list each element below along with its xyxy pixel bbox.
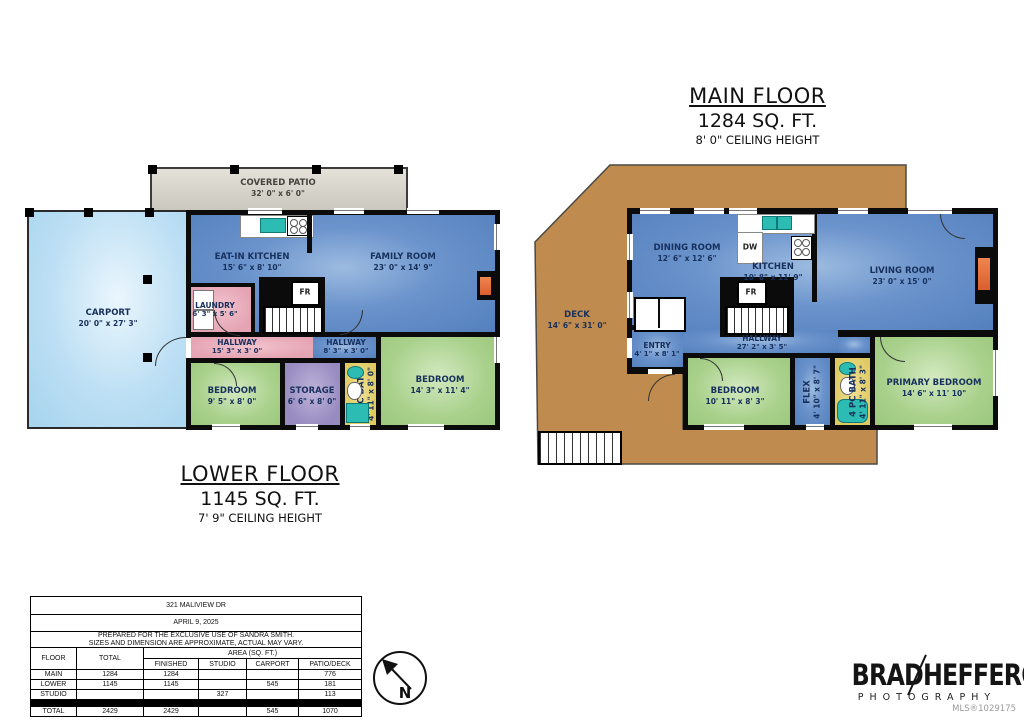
room-label-kitchen: KITCHEN 10' 8" x 11' 9" <box>743 262 802 282</box>
room-label-hallway-main: HALLWAY 27' 2" x 3' 5" <box>737 334 787 352</box>
logo-subtitle: PHOTOGRAPHY <box>839 692 1015 703</box>
col-header-total: TOTAL <box>77 648 144 670</box>
table-row-total: TOTAL 2429 2429 545 1070 <box>31 707 362 717</box>
room-label-dining-room: DINING ROOM 12' 6" x 12' 6" <box>654 243 721 263</box>
window <box>993 350 999 396</box>
table-disclaimer: PREPARED FOR THE EXCLUSIVE USE OF SANDRA… <box>31 632 362 648</box>
col-header-floor: FLOOR <box>31 648 77 670</box>
window <box>627 234 633 260</box>
wall <box>838 330 875 337</box>
dishwasher-label: DW <box>743 243 758 252</box>
col-header-finished: FINISHED <box>144 659 199 670</box>
deck-stairs <box>538 431 622 465</box>
table-separator <box>31 700 362 707</box>
info-table: 321 MALIVIEW DR APRIL 9, 2025 PREPARED F… <box>30 596 362 717</box>
door-opening <box>627 338 632 358</box>
window <box>627 292 633 318</box>
window <box>694 208 724 214</box>
table-row-studio: STUDIO 327 113 <box>31 690 362 700</box>
fireplace-icon <box>978 258 990 290</box>
stairs <box>725 306 789 335</box>
closet <box>634 297 686 332</box>
table-row-main: MAIN 1284 1284 776 <box>31 670 362 680</box>
col-header-patio-deck: PATIO/DECK <box>299 659 362 670</box>
window <box>640 208 670 214</box>
room-label-bedroom-main: BEDROOM 10' 11" x 8' 3" <box>705 386 764 406</box>
room-label-entry: ENTRY 4' 1" x 8' 1" <box>634 341 679 359</box>
window <box>838 208 868 214</box>
wall <box>875 330 887 337</box>
room-hallway-main-ext <box>838 337 870 353</box>
window <box>806 424 824 430</box>
sink-icon <box>777 216 792 230</box>
wall <box>658 299 660 328</box>
col-header-area: AREA (SQ. FT.) <box>144 648 362 659</box>
door-opening <box>648 369 672 374</box>
compass-north-label: N <box>399 684 412 702</box>
room-label-primary-bedroom: PRIMARY BEDROOM 14' 6" x 11' 10" <box>887 378 982 398</box>
room-label-bath-main: 4 PC BATH 4' 11" x 8' 3" <box>848 365 867 419</box>
mls-number: MLS®1029175 <box>890 704 1016 714</box>
col-header-studio: STUDIO <box>199 659 247 670</box>
window <box>704 424 744 430</box>
sink-icon <box>762 216 777 230</box>
compass-icon: N <box>371 648 429 706</box>
window <box>914 424 952 430</box>
room-label-flex: FLEX 4' 10" x 8' 7" <box>802 365 821 419</box>
wall <box>904 330 993 337</box>
floor-plan-page: MAIN FLOOR 1284 SQ. FT. 8' 0" CEILING HE… <box>0 0 1024 723</box>
window <box>729 208 757 214</box>
stove-icon <box>791 236 812 260</box>
room-label-living-room: LIVING ROOM 23' 0" x 15' 0" <box>870 266 935 286</box>
fridge-label: FR <box>746 288 757 297</box>
table-date: APRIL 9, 2025 <box>31 615 362 632</box>
table-address: 321 MALIVIEW DR <box>31 597 362 615</box>
col-header-carport: CARPORT <box>247 659 299 670</box>
table-row-lower: LOWER 1145 1145 545 181 <box>31 680 362 690</box>
room-label-deck: DECK 14' 6" x 31' 0" <box>547 310 606 330</box>
